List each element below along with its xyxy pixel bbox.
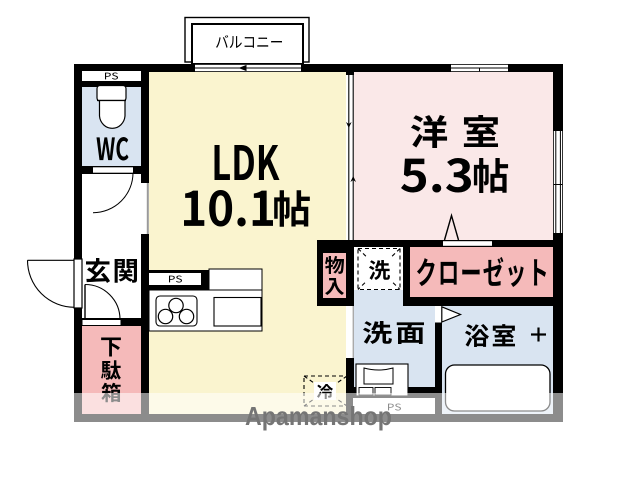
svg-text:Apamanshop: Apamanshop [245, 403, 392, 431]
